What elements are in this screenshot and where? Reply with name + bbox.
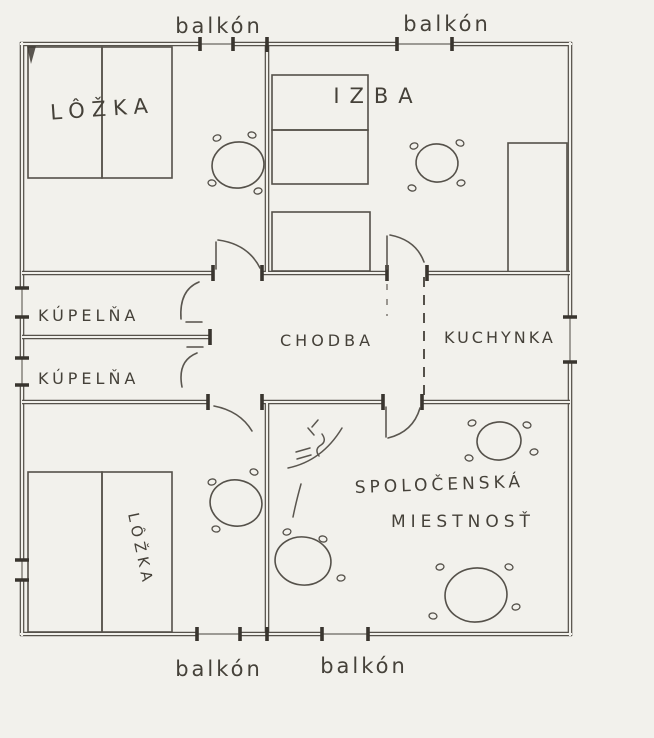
table-common-3 [429, 563, 521, 625]
bed-izba-3 [272, 212, 370, 271]
label-bedroom-bottom: LÔŽKA [124, 511, 158, 588]
floor-plan-canvas: balkón balkón LÔŽKA IZBA KÚPELŇA KÚPELŇA… [0, 0, 654, 738]
label-bathroom-1: KÚPELŇA [38, 306, 139, 325]
entrance-scribble [288, 420, 342, 517]
label-balcony-top-right: balkón [403, 12, 491, 36]
label-bedroom-top: LÔŽKA [49, 92, 155, 124]
table-bottom-left [206, 468, 265, 533]
label-hallway: CHODBA [280, 331, 374, 350]
label-bathroom-2: KÚPELŇA [38, 369, 139, 388]
label-kitchenette: KUCHYNKA [444, 328, 556, 347]
label-izba: IZBA [333, 84, 422, 108]
door-bathroom-2 [181, 347, 203, 387]
wardrobe-izba [508, 143, 567, 272]
door-common-room [386, 407, 420, 438]
label-balcony-bottom-left: balkón [175, 657, 263, 681]
floor-plan-page: balkón balkón LÔŽKA IZBA KÚPELŇA KÚPELŇA… [0, 0, 654, 738]
bed-bottom-left-a [28, 472, 102, 632]
door-bedroom-bottom [214, 406, 252, 431]
label-balcony-top-left: balkón [175, 14, 263, 38]
table-izba [407, 139, 465, 192]
door-izba [387, 235, 424, 269]
label-common-room-line2: MIESTNOSŤ [391, 510, 535, 532]
table-lozka-top [208, 131, 267, 195]
label-balcony-bottom-right: balkón [320, 654, 408, 678]
door-bedroom-top [216, 240, 260, 269]
table-common-2 [272, 528, 345, 589]
room-labels: balkón balkón LÔŽKA IZBA KÚPELŇA KÚPELŇA… [38, 12, 556, 681]
label-common-room-line1: SPOLOČENSKÁ [354, 470, 524, 498]
bed-izba-2 [272, 130, 368, 184]
furniture-tables [206, 131, 538, 625]
table-common-1 [465, 419, 539, 462]
door-bathroom-1 [181, 282, 202, 322]
